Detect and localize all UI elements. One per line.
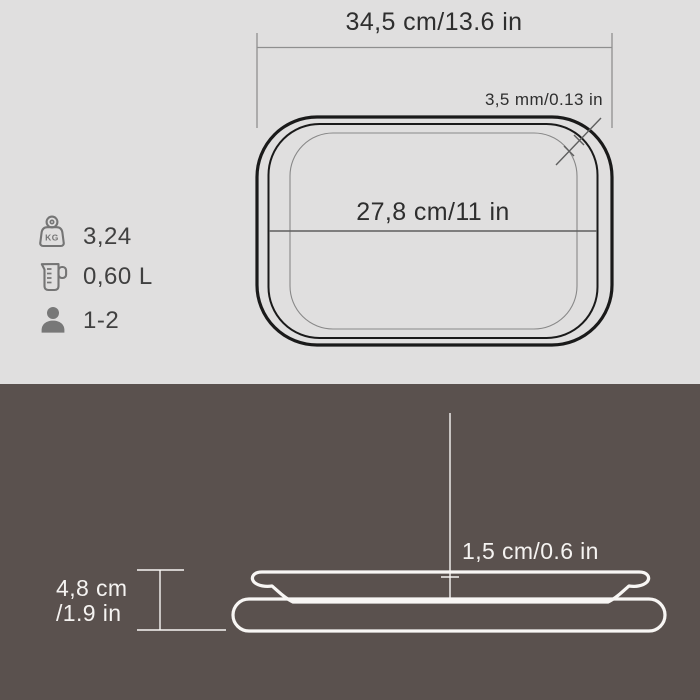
total-height-in-label: /1.9 in [56,601,121,626]
total-height-dimension-bracket [137,570,226,630]
product-dimensions-image: 34,5 cm/13.6 in 3,5 mm/0.13 in 27,8 cm/1… [0,0,700,700]
inner-width-label: 27,8 cm/11 in [356,199,509,227]
kg-badge-text: KG [45,233,59,243]
outer-width-dimension-lines [257,33,612,128]
volume-value: 0,60 L [83,263,153,291]
tray-side-profile [233,572,665,631]
base-profile [233,599,665,631]
weight-value: 3,24 [83,223,132,251]
person-icon [39,306,67,334]
outer-width-label: 34,5 cm/13.6 in [346,9,523,37]
weight-kg-icon: KG [36,214,68,250]
servings-value: 1-2 [83,307,119,335]
inner-depth-label: 1,5 cm/0.6 in [462,539,599,564]
total-height-cm-label: 4,8 cm [56,576,127,601]
measuring-jug-icon [39,259,71,293]
rim-thickness-label: 3,5 mm/0.13 in [485,91,603,110]
